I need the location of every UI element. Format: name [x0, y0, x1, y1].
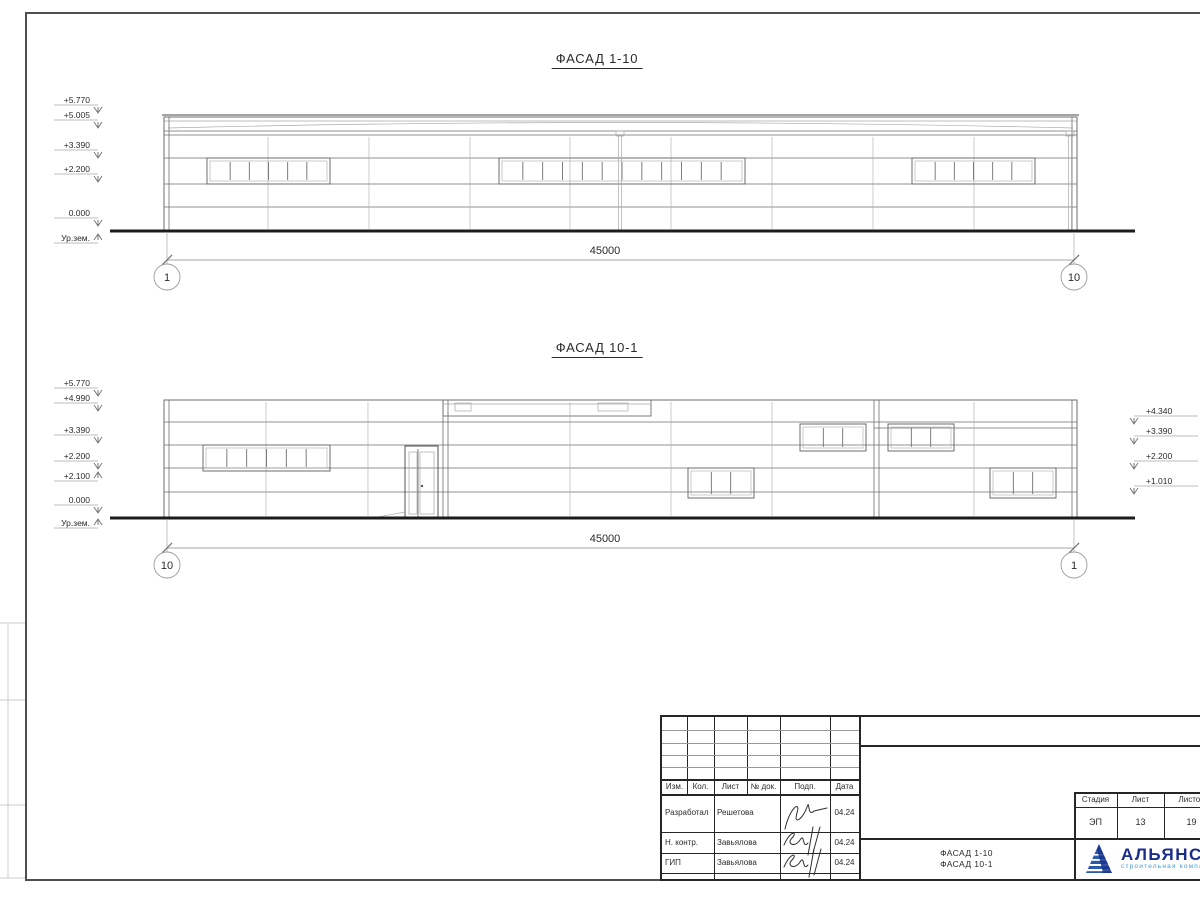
svg-text:+4.990: +4.990 [64, 393, 91, 403]
logo-company-name: АЛЬЯНС [1121, 846, 1200, 863]
tb-name-zavyalova-1: Завьялова [714, 832, 780, 853]
svg-text:+1.010: +1.010 [1146, 476, 1173, 486]
svg-text:0.000: 0.000 [69, 208, 91, 218]
tb-col-data: Дата [830, 779, 859, 794]
svg-text:+5.005: +5.005 [64, 110, 91, 120]
tb-col-kol: Кол. [687, 779, 714, 794]
svg-text:+5.770: +5.770 [64, 95, 91, 105]
tb-line [662, 743, 859, 744]
company-logo: АЛЬЯНС строительная компания [1074, 838, 1200, 879]
facade-10-1-title: ФАСАД 10-1 [552, 340, 643, 358]
tb-drawing-name: ФАСАД 1-10 ФАСАД 10-1 [859, 838, 1074, 879]
tb-col-podp: Подп. [780, 779, 830, 794]
svg-text:10: 10 [1068, 272, 1080, 284]
svg-text:Ур.зем.: Ур.зем. [61, 518, 90, 528]
drawing-sheet: 45000110+5.770+5.005+3.390+2.2000.000Ур.… [0, 0, 1200, 900]
svg-text:+5.770: +5.770 [64, 378, 91, 388]
tb-line [662, 730, 859, 731]
svg-text:45000: 45000 [590, 245, 621, 257]
tb-date: 04.24 [830, 794, 859, 832]
title-block: Изм. Кол. Лист № док. Подп. Дата Разрабо… [660, 715, 1200, 881]
facade-10-1-drawing: 45000101+5.770+4.990+3.390+2.200+2.1000.… [54, 378, 1198, 578]
tb-sheet-value: 13 [1117, 807, 1164, 838]
tb-drawing-name-line1: ФАСАД 1-10 [940, 849, 993, 858]
tb-sheets-value: 19 [1164, 807, 1200, 838]
svg-text:45000: 45000 [590, 533, 621, 545]
tb-sheet-header: Лист [1117, 792, 1164, 807]
tb-role-nkontr: Н. контр. [662, 832, 714, 853]
svg-text:10: 10 [161, 560, 173, 572]
svg-text:+2.200: +2.200 [64, 451, 91, 461]
svg-text:+2.200: +2.200 [64, 164, 91, 174]
svg-text:1: 1 [164, 272, 170, 284]
tb-line [662, 755, 859, 756]
tb-stage-header: Стадия [1074, 792, 1117, 807]
tb-sheets-header: Листов [1164, 792, 1200, 807]
svg-text:+3.390: +3.390 [1146, 426, 1173, 436]
svg-text:Ур.зем.: Ур.зем. [61, 233, 90, 243]
svg-text:+2.100: +2.100 [64, 471, 91, 481]
facade-1-10-title: ФАСАД 1-10 [552, 51, 643, 69]
tb-line [859, 745, 1200, 747]
svg-text:+2.200: +2.200 [1146, 451, 1173, 461]
tb-role-gip: ГИП [662, 853, 714, 873]
margin-stamp-lines [0, 623, 25, 878]
tb-drawing-name-line2: ФАСАД 10-1 [940, 860, 993, 869]
signature-gip-icon [780, 845, 832, 879]
svg-text:+3.390: +3.390 [64, 425, 91, 435]
tb-stage-value: ЭП [1074, 807, 1117, 838]
tb-name-zavyalova-2: Завьялова [714, 853, 780, 873]
tb-line [662, 767, 859, 768]
tb-col-ndok: № док. [747, 779, 780, 794]
logo-company-subtitle: строительная компания [1121, 864, 1200, 871]
tb-name-reshetova: Решетова [714, 794, 780, 832]
svg-text:+4.340: +4.340 [1146, 406, 1173, 416]
svg-text:+3.390: +3.390 [64, 140, 91, 150]
svg-text:0.000: 0.000 [69, 495, 91, 505]
tb-col-list: Лист [714, 779, 747, 794]
tb-date: 04.24 [830, 853, 859, 873]
logo-pyramid-icon [1085, 843, 1113, 874]
tb-col-izm: Изм. [662, 779, 687, 794]
tb-date: 04.24 [830, 832, 859, 853]
tb-role-razrabotal: Разработал [662, 794, 714, 832]
facade-1-10-drawing: 45000110+5.770+5.005+3.390+2.2000.000Ур.… [54, 95, 1135, 290]
svg-text:1: 1 [1071, 560, 1077, 572]
